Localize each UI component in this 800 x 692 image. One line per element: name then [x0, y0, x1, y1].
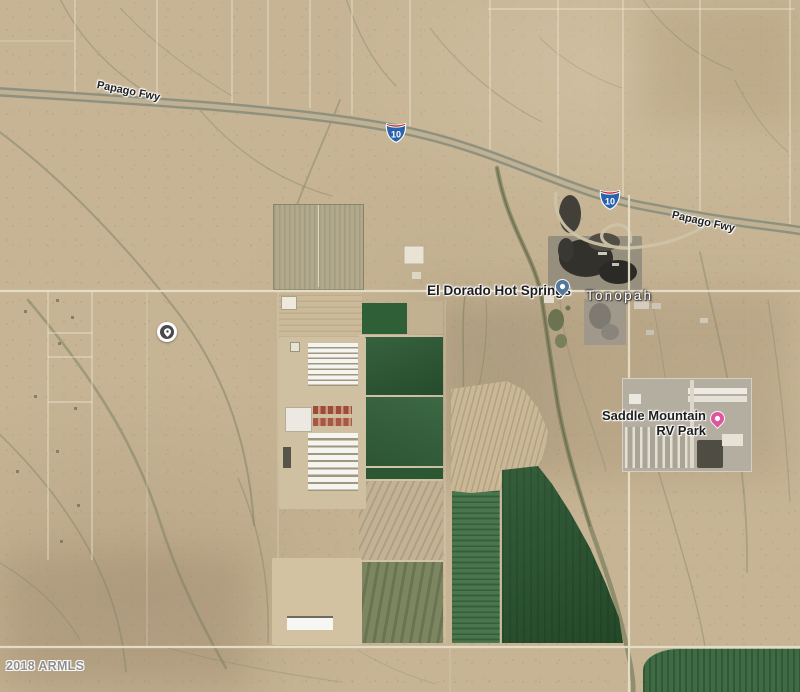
long-white-barn	[287, 616, 333, 630]
satellite-map-canvas[interactable]: Papago Fwy Papago Fwy 10 10 El Dorado Ho…	[0, 0, 800, 692]
rv-park-white-building	[722, 434, 743, 446]
poi-label-el-dorado[interactable]: El Dorado Hot Springs	[427, 283, 571, 298]
barn-row-upper	[308, 343, 358, 386]
white-building	[285, 407, 312, 432]
red-building-row-1	[313, 406, 352, 414]
svg-text:10: 10	[605, 197, 615, 207]
tonopah-parcels	[584, 299, 708, 345]
red-building-row-2	[313, 418, 352, 426]
small-structures	[404, 246, 424, 279]
rv-park-dark-building	[697, 440, 723, 468]
attribution-watermark: 2018 ARMLS	[6, 659, 84, 673]
dark-shed	[283, 447, 291, 468]
road-network	[0, 0, 800, 692]
interstate-10-shield-west: 10	[385, 123, 407, 143]
property-marker[interactable]	[157, 322, 177, 342]
poi-label-saddle-mountain[interactable]: Saddle Mountain RV Park	[594, 409, 706, 438]
town-label-tonopah[interactable]: Tonopah	[586, 288, 653, 303]
cleared-parcel-south	[272, 558, 362, 645]
barn-row-lower	[308, 433, 358, 491]
rv-park-building-1	[688, 388, 747, 394]
rv-park-building-2	[688, 396, 747, 402]
property-marker-inner	[160, 325, 174, 339]
white-shed-field	[281, 296, 297, 310]
svg-text:10: 10	[391, 130, 401, 140]
interstate-10-shield-east: 10	[599, 190, 621, 210]
rv-park-office	[629, 394, 641, 404]
location-pin-icon	[164, 328, 171, 337]
small-shed-top	[290, 342, 300, 352]
hot-springs-site	[544, 296, 571, 348]
